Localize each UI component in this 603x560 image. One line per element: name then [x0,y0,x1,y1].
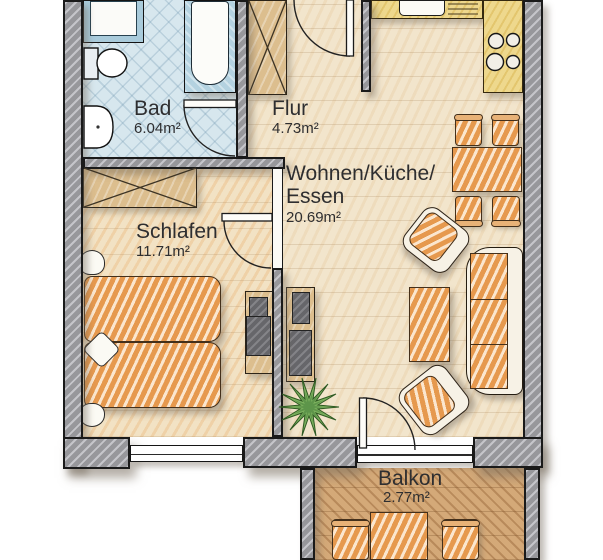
bedroom-door-opening [272,167,283,270]
sofa-cushions [470,253,508,389]
room-area-bad: 6.04m² [134,121,181,137]
dining-chair [455,116,482,146]
room-label-flur: Flur [272,97,308,120]
room-area-flur: 4.73m² [272,121,319,137]
wall-bath-bottom [83,157,285,169]
wall-bedroom-living [272,268,283,437]
shower-tray [90,1,137,36]
room-label-schlafen: Schlafen [136,220,218,243]
wall-bottom-middle [243,437,357,468]
dining-table [452,147,522,192]
wall-right-exterior [523,0,543,467]
balcony-chair [442,519,479,560]
balcony-table [370,512,428,560]
dining-chair [492,116,519,146]
room-area-balkon: 2.77m² [383,490,430,506]
floor-plan: Bad 6.04m² Flur 4.73m² Wohnen/Küche/ Ess… [0,0,603,560]
tv-cabinet-living-side [286,287,315,382]
bathtub-basin [191,1,229,85]
hall-wardrobe [248,0,287,95]
balcony-door-window [357,445,473,463]
tv-cabinet-bedroom-side [245,291,274,374]
bedroom-window [130,445,243,462]
dining-chair [492,196,520,225]
wall-hall-kitchen [361,0,371,92]
kitchen-sink [399,0,445,16]
dining-chair [455,196,482,225]
wall-balcony-left [300,468,315,560]
room-label-wohnen-line2: Essen [286,185,435,208]
room-label-bad: Bad [134,97,171,120]
bed-mattress [84,276,221,342]
room-label-balkon: Balkon [378,467,442,490]
wall-bottom-left [63,437,130,469]
sofa [466,247,523,395]
room-label-wohnen: Wohnen/Küche/ Essen 20.69m² [286,162,435,226]
shower [83,0,144,43]
wall-balcony-right [524,468,540,560]
room-area-schlafen: 11.71m² [136,244,190,260]
balcony-chair [332,519,369,560]
bathtub [184,0,236,93]
room-label-wohnen-line1: Wohnen/Küche/ [286,162,435,185]
wall-bottom-right [473,437,543,468]
bedroom-wardrobe [83,167,197,208]
wall-bath-hall [236,0,248,158]
wall-left-exterior [63,0,83,469]
kitchen-stove-cabinet [483,0,523,93]
room-area-wohnen: 20.69m² [286,210,435,226]
coffee-table [409,287,450,362]
